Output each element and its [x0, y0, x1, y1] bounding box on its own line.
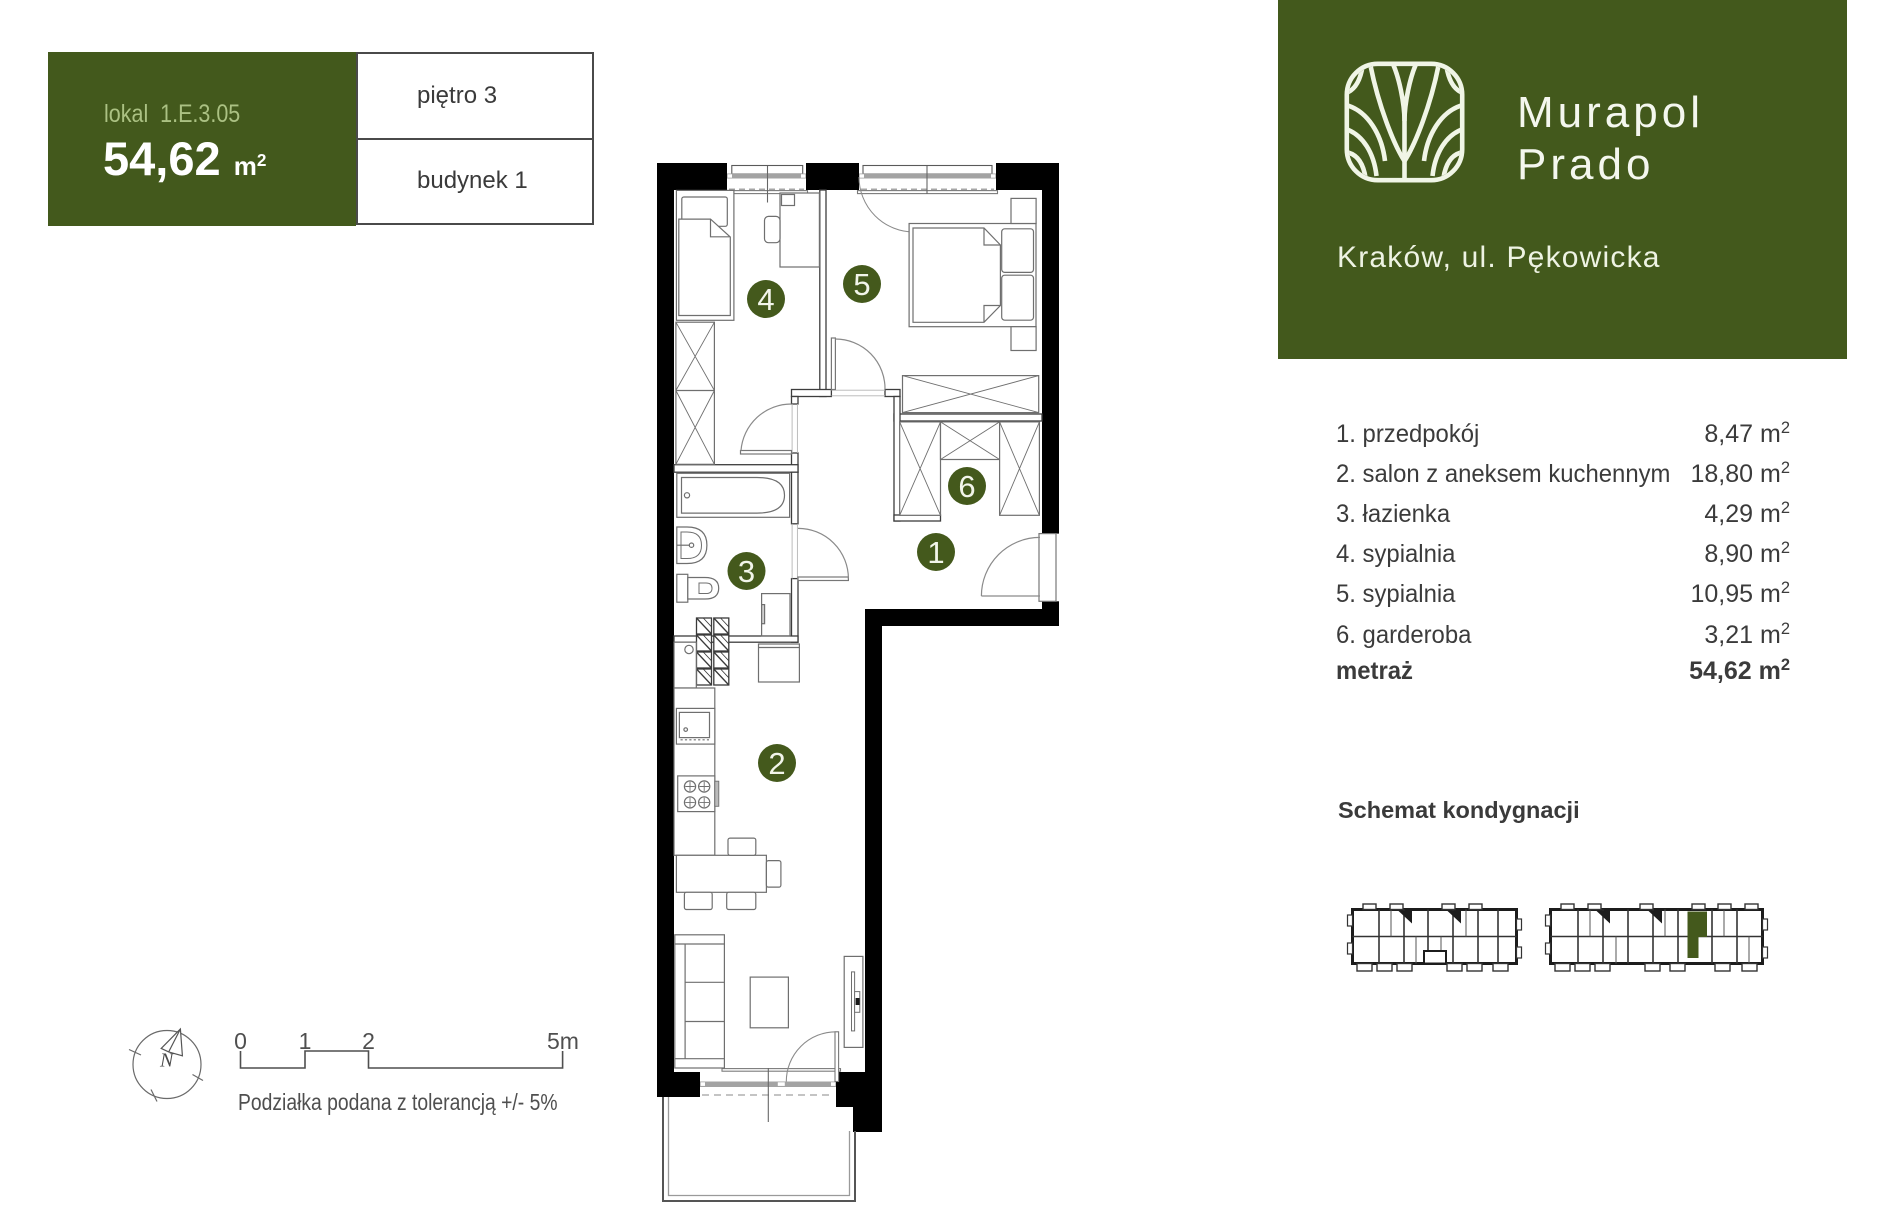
svg-text:3: 3	[738, 554, 755, 589]
svg-text:0: 0	[234, 1028, 247, 1054]
svg-text:2: 2	[768, 746, 785, 781]
svg-text:6: 6	[958, 469, 975, 504]
svg-text:1: 1	[927, 535, 944, 570]
svg-text:5: 5	[853, 267, 870, 302]
svg-text:1: 1	[299, 1028, 312, 1054]
svg-text:N: N	[159, 1050, 175, 1072]
svg-text:2: 2	[362, 1028, 375, 1054]
svg-text:4: 4	[757, 282, 774, 317]
svg-text:5m: 5m	[547, 1028, 579, 1054]
